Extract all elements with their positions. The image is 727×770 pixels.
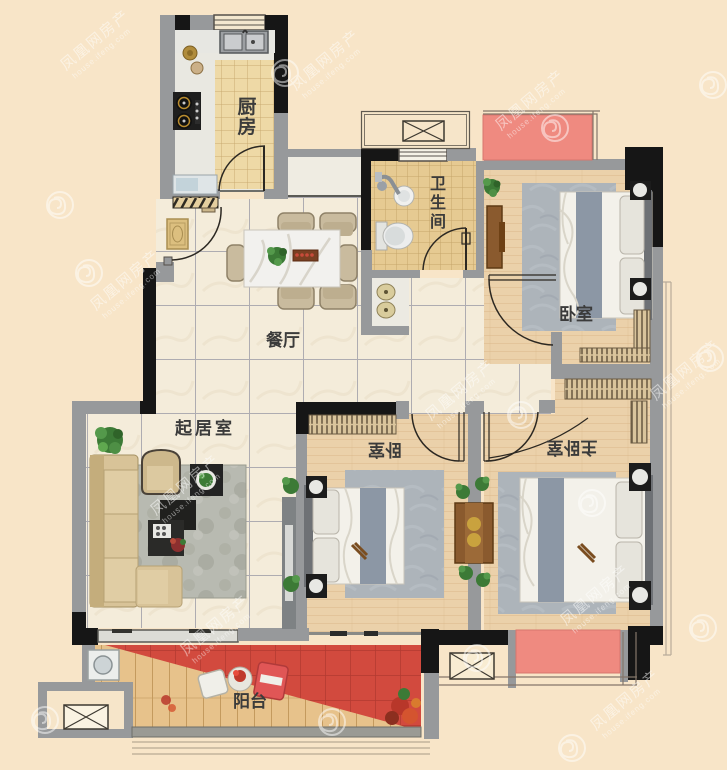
svg-text:间: 间 <box>430 212 446 231</box>
svg-text:卫: 卫 <box>430 176 446 193</box>
svg-text:阳台: 阳台 <box>233 691 267 711</box>
svg-text:主卧室: 主卧室 <box>547 438 598 458</box>
svg-text:起居室: 起居室 <box>174 418 235 438</box>
svg-text:厨: 厨 <box>237 96 256 118</box>
svg-text:生: 生 <box>430 193 446 212</box>
svg-text:卧室: 卧室 <box>368 440 402 460</box>
svg-text:餐厅: 餐厅 <box>266 330 300 350</box>
svg-text:卧室: 卧室 <box>559 304 593 324</box>
svg-text:房: 房 <box>237 115 256 138</box>
